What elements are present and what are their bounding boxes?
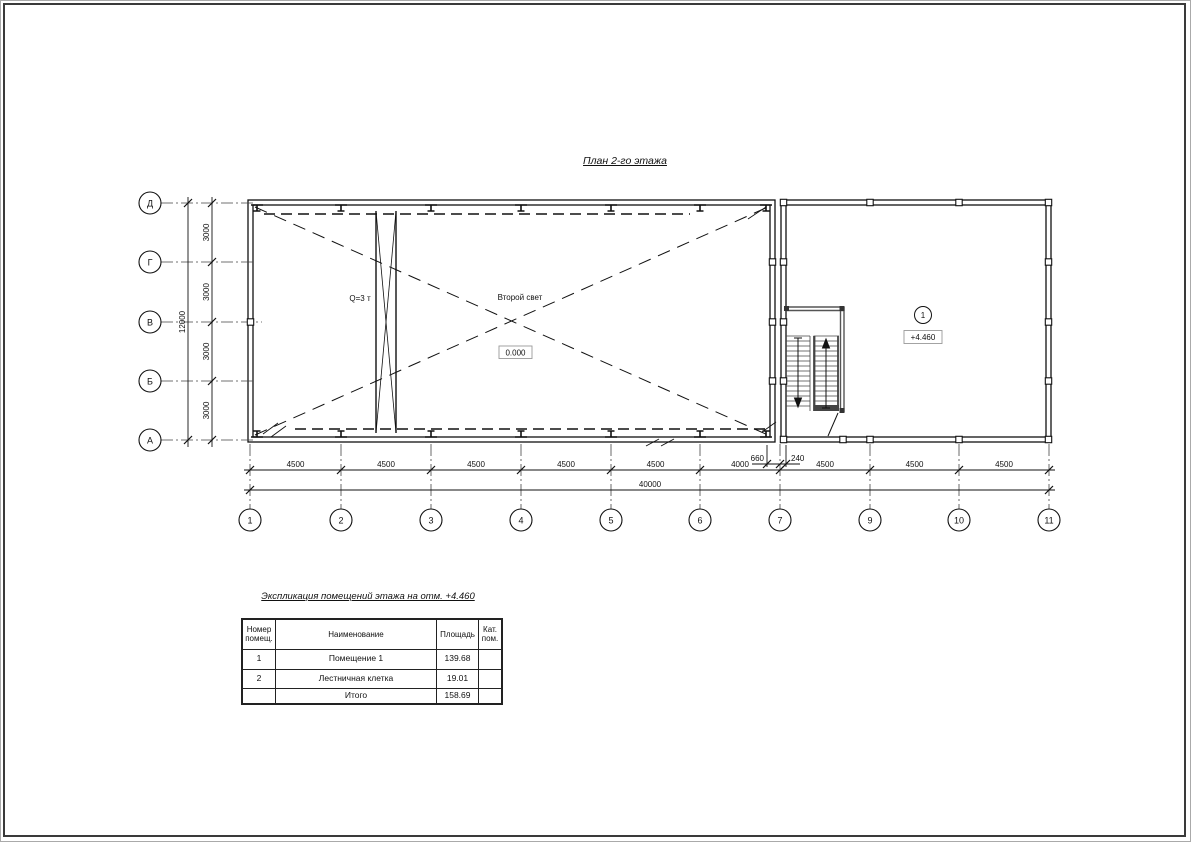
- table-header-row: Номер помещ. Наименование Площадь Кат. п…: [242, 619, 502, 649]
- table-row: 2 Лестничная клетка 19.01: [242, 669, 502, 688]
- ground-level-value: 0.000: [505, 349, 526, 358]
- dim-label: 4000: [731, 460, 749, 469]
- dim-label-total: 40000: [639, 480, 662, 489]
- dim-label: 3000: [202, 223, 211, 241]
- dim-label: 4500: [995, 460, 1013, 469]
- rail-break-marks: [263, 207, 776, 446]
- dim-label-offset-left: 660: [751, 454, 765, 463]
- cell-name: Помещение 1: [276, 649, 437, 669]
- cell-number: 2: [242, 669, 276, 688]
- axis-label: 4: [518, 516, 523, 526]
- floor-level-mark: +4.460: [904, 331, 942, 344]
- dim-label: 4500: [906, 460, 924, 469]
- stair-treads: [786, 336, 839, 411]
- axis-bubbles-bottom: [239, 509, 1060, 531]
- header-area: Площадь: [437, 619, 479, 649]
- floor-plan-drawing: Q=3 т Второй свет 0.000 1 +4.460: [0, 0, 1191, 842]
- cell-number: 1: [242, 649, 276, 669]
- room-number-marker: 1: [915, 307, 932, 324]
- left-dimension-ticks: [184, 199, 216, 444]
- dim-label-total: 12000: [178, 310, 187, 333]
- axis-label: 9: [867, 516, 872, 526]
- drawing-title: План 2-го этажа: [525, 155, 725, 167]
- header-category: Кат. пом.: [479, 619, 503, 649]
- axis-label: Б: [147, 377, 153, 387]
- axis-label: 11: [1044, 516, 1053, 526]
- column-markers: [247, 199, 1051, 442]
- void-label: Второй свет: [498, 293, 543, 302]
- stair-door-leaf: [828, 413, 838, 436]
- room-number-value: 1: [921, 311, 926, 320]
- void-cross-lines: [255, 207, 768, 435]
- cross-bracing: [376, 211, 396, 433]
- header-name: Наименование: [276, 619, 437, 649]
- cell-area: 19.01: [437, 669, 479, 688]
- explication-title: Экспликация помещений этажа на отм. +4.4…: [240, 591, 496, 602]
- axis-label: 6: [697, 516, 702, 526]
- table-total-row: Итого 158.69: [242, 688, 502, 704]
- floor-level-value: +4.460: [911, 333, 936, 342]
- dim-label: 4500: [816, 460, 834, 469]
- axis-label: Г: [148, 258, 153, 268]
- axis-label: В: [147, 318, 153, 328]
- cell-name: Лестничная клетка: [276, 669, 437, 688]
- bottom-dimension-labels: 4500 4500 4500 4500 4500 4000 4500 4500 …: [287, 454, 1014, 489]
- axis-label: Д: [147, 199, 153, 209]
- dim-label: 4500: [557, 460, 575, 469]
- axis-bubble-labels-bottom: 1 2 3 4 5 6 7 9 10 11: [247, 516, 1053, 526]
- axis-bubble-labels-left: Д Г В Б А: [147, 199, 153, 446]
- cell-area: 139.68: [437, 649, 479, 669]
- axis-label: 3: [428, 516, 433, 526]
- dim-label: 3000: [202, 342, 211, 360]
- ground-level-mark: 0.000: [499, 346, 532, 359]
- table-row: 1 Помещение 1 139.68: [242, 649, 502, 669]
- axis-label: 2: [338, 516, 343, 526]
- drawing-sheet: Q=3 т Второй свет 0.000 1 +4.460: [0, 0, 1191, 842]
- cell-number-empty: [242, 688, 276, 704]
- dim-label: 4500: [647, 460, 665, 469]
- cell-category-empty: [479, 688, 503, 704]
- total-area: 158.69: [437, 688, 479, 704]
- axis-label: А: [147, 436, 153, 446]
- left-dimension-labels: 3000 3000 3000 3000 12000: [178, 223, 211, 419]
- dim-label-offset-right: 240: [791, 454, 805, 463]
- dim-label: 3000: [202, 283, 211, 301]
- dim-label: 4500: [377, 460, 395, 469]
- explication-table: Номер помещ. Наименование Площадь Кат. п…: [241, 618, 503, 705]
- cell-category: [479, 669, 503, 688]
- header-number: Номер помещ.: [242, 619, 276, 649]
- dim-label: 3000: [202, 401, 211, 419]
- crane-capacity-label: Q=3 т: [349, 294, 371, 303]
- total-label: Итого: [276, 688, 437, 704]
- axis-label: 7: [777, 516, 782, 526]
- axis-label: 5: [608, 516, 613, 526]
- axis-label: 10: [954, 516, 964, 526]
- dim-label: 4500: [287, 460, 305, 469]
- axis-label: 1: [247, 516, 252, 526]
- stair-direction-arrows: [794, 338, 830, 408]
- dim-label: 4500: [467, 460, 485, 469]
- cell-category: [479, 649, 503, 669]
